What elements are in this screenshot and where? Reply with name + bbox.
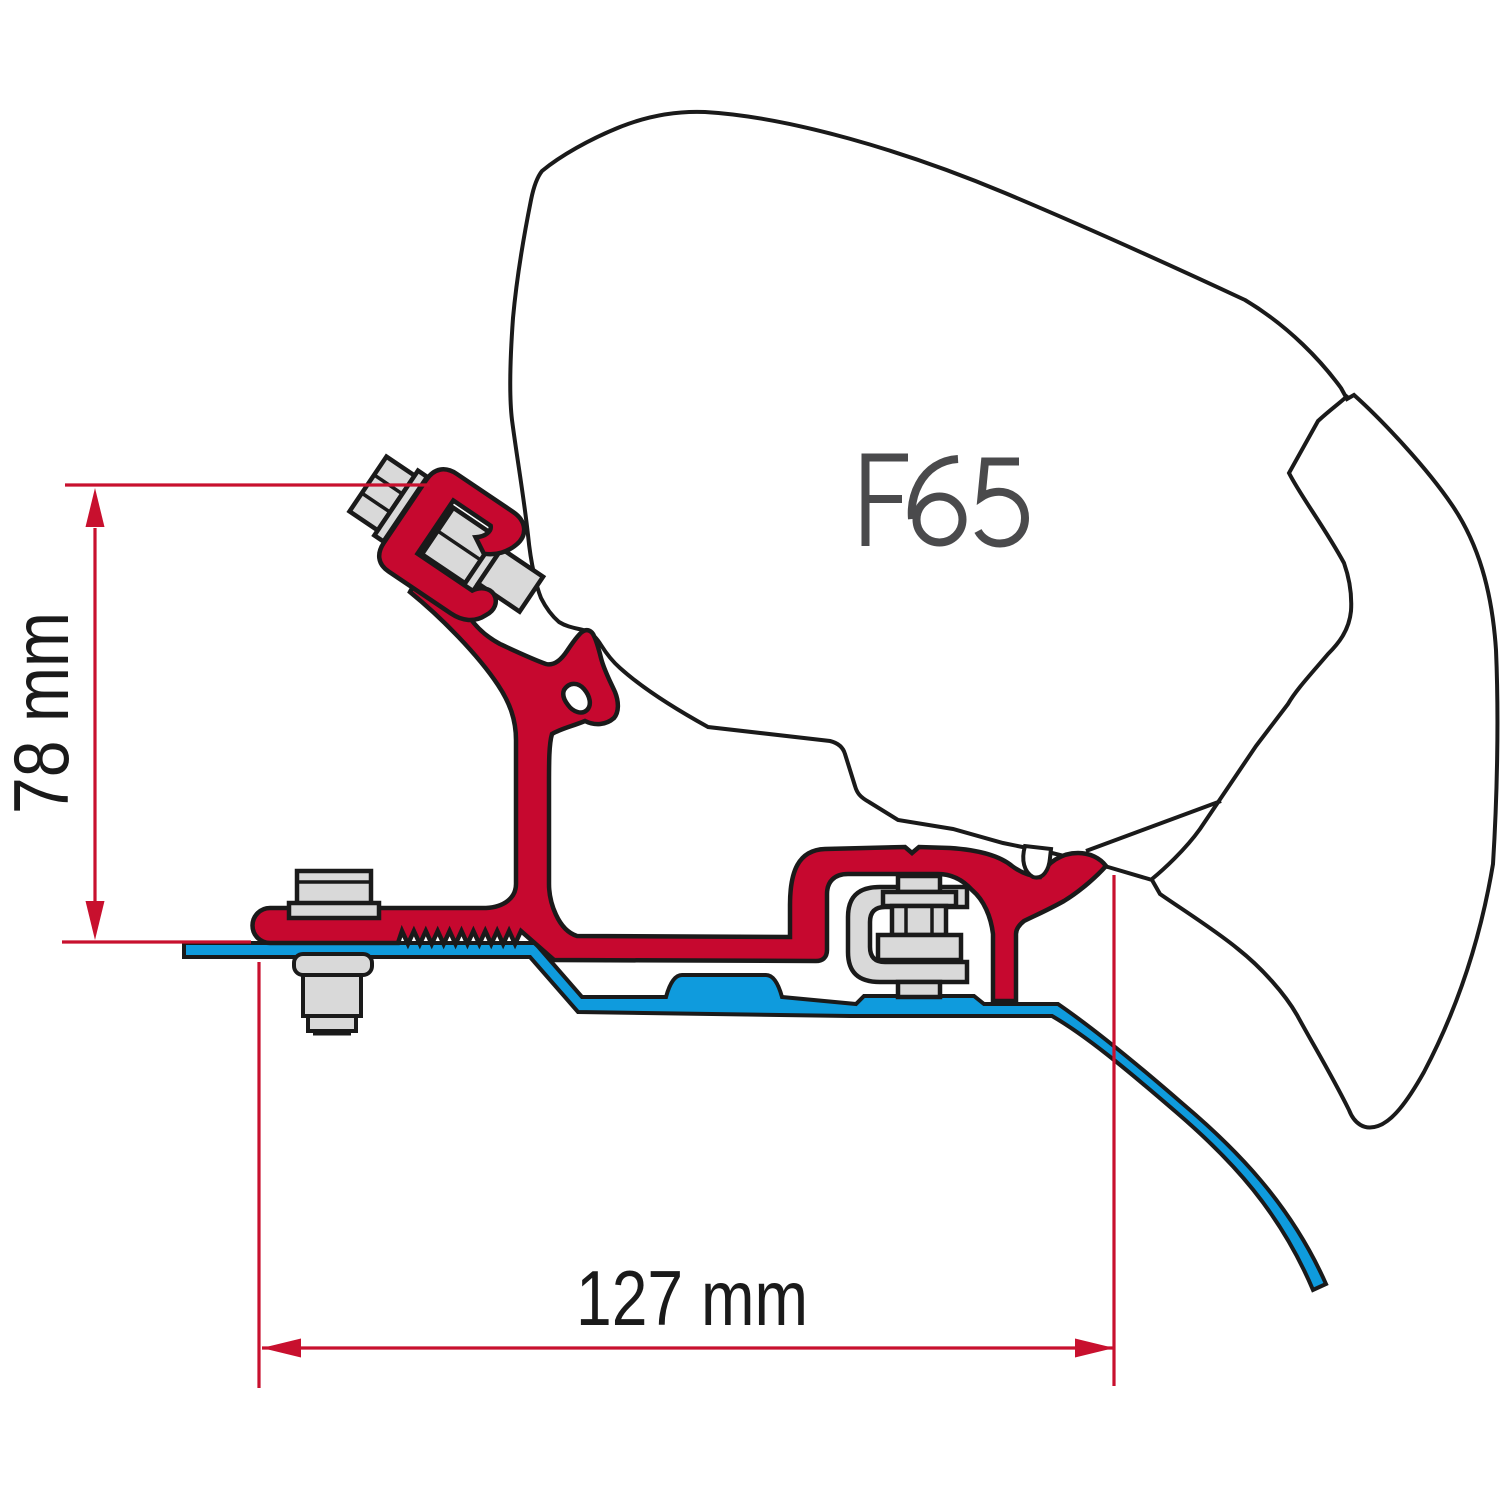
svg-text:127 mm: 127 mm	[576, 1254, 808, 1342]
svg-text:78 mm: 78 mm	[0, 612, 85, 814]
